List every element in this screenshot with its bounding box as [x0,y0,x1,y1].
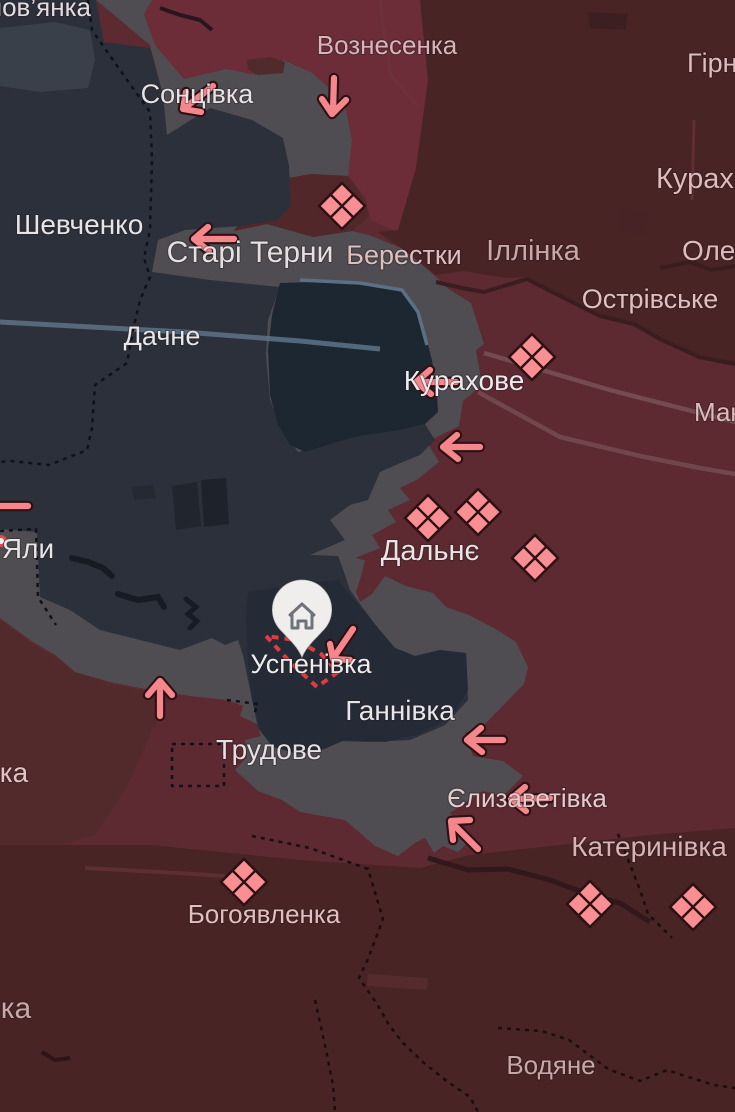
svg-text:Дальнє: Дальнє [381,535,480,567]
svg-text:Дачне: Дачне [124,321,201,351]
svg-text:Мак: Мак [694,397,735,427]
svg-text:Успенівка: Успенівка [250,649,372,679]
svg-text:Вознесенка: Вознесенка [317,30,458,60]
svg-text:Богоявленка: Богоявленка [188,899,341,929]
svg-text:Сонцівка: Сонцівка [141,79,255,109]
svg-text:Олен: Олен [682,235,735,266]
svg-text:Водяне: Водяне [506,1050,595,1080]
svg-text:Курахі: Курахі [656,163,735,195]
svg-text:Єлизаветівка: Єлизаветівка [447,783,607,813]
svg-text:Шевченко: Шевченко [15,209,144,240]
svg-text:Яли: Яли [2,533,54,564]
svg-text:Курахове: Курахове [404,365,525,396]
svg-text:ка: ка [1,992,32,1025]
svg-text:Іллінка: Іллінка [486,235,581,267]
svg-text:Катеринівка: Катеринівка [571,831,727,862]
svg-text:Трудове: Трудове [216,734,322,765]
svg-text:пов’янка: пов’янка [0,0,92,22]
svg-text:ка: ка [0,757,29,788]
svg-text:Ганнівка: Ганнівка [345,695,455,726]
svg-text:Старі Терни: Старі Терни [167,236,334,269]
svg-text:Берестки: Берестки [346,240,462,270]
svg-text:Острівське: Острівське [582,284,719,314]
svg-text:Гірни: Гірни [687,48,735,78]
